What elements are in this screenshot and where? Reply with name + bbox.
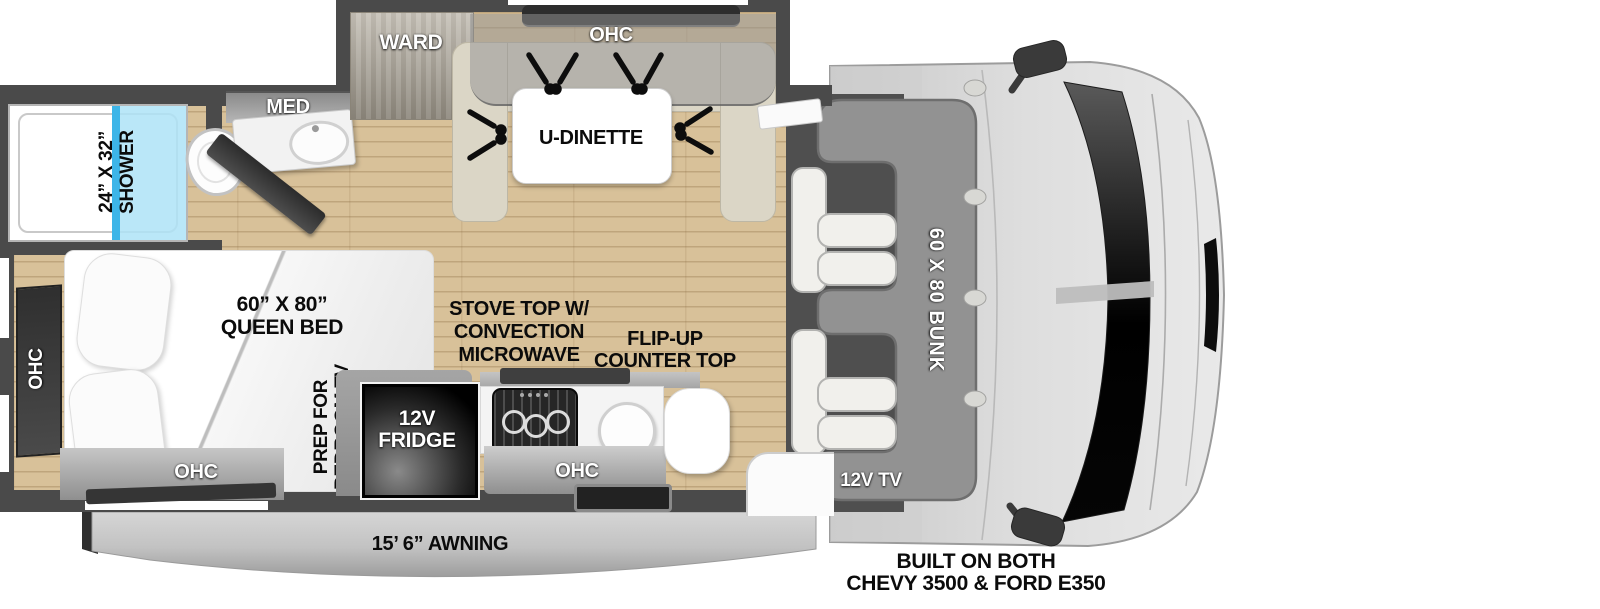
flip-up-counter	[664, 388, 730, 474]
kitchen-ohc-label: OHC	[537, 460, 617, 482]
flip-up-label: FLIP-UP COUNTER TOP	[570, 328, 760, 372]
burner	[502, 410, 526, 434]
shower-size-text: 24” X 32”	[96, 131, 117, 213]
bunk-text: 60 X 80 BUNK	[925, 228, 947, 372]
seatbelts	[440, 40, 780, 210]
cab-tv-label: 12V TV	[821, 471, 921, 492]
seatbelt-strap	[560, 55, 576, 82]
chassis-text-1: BUILT ON BOTH	[806, 551, 1146, 573]
front-grille-sliver	[1204, 238, 1219, 352]
stove-knobs	[520, 393, 524, 397]
bunk-label: 60 X 80 BUNK	[925, 215, 947, 385]
bed-type-text: QUEEN BED	[192, 316, 372, 339]
bath-sink	[287, 118, 351, 167]
fridge-label: 12V FRIDGE	[362, 408, 472, 452]
burner	[524, 414, 548, 438]
ohc-side-text: OHC	[27, 348, 48, 389]
ohc-side-label: OHC	[27, 334, 47, 404]
chassis-text-2: CHEVY 3500 & FORD E350	[806, 573, 1146, 595]
stove	[492, 388, 578, 454]
flip-text-2: COUNTER TOP	[570, 350, 760, 372]
chassis-note: BUILT ON BOTH CHEVY 3500 & FORD E350	[806, 551, 1146, 595]
seatbelt-strap	[529, 55, 546, 82]
seatbelt-strap	[616, 55, 633, 82]
flip-text-1: FLIP-UP	[570, 328, 760, 350]
seatbelt-strap	[688, 139, 711, 152]
stove-text-1: STOVE TOP W/	[404, 298, 634, 321]
burner	[546, 410, 570, 434]
seatbelt-strap	[646, 55, 661, 82]
pillow	[73, 250, 174, 374]
ohc-foot-label: OHC	[156, 461, 236, 483]
shower-name-text: SHOWER	[117, 130, 138, 214]
bed-size-text: 60” X 80”	[192, 293, 372, 316]
window-bedroom-left-2	[0, 395, 9, 472]
shower-label: 24” X 32” SHOWER	[96, 97, 138, 247]
bed-label: 60” X 80” QUEEN BED	[192, 293, 372, 339]
tv-prep-text-1: PREP FOR	[311, 380, 332, 474]
entry-step	[574, 484, 672, 512]
seatbelt-strap	[470, 112, 494, 126]
seatbelt-strap	[470, 143, 494, 158]
fridge-text-2: FRIDGE	[362, 430, 472, 452]
fridge-text-1: 12V	[362, 408, 472, 430]
seatbelt-strap	[687, 109, 710, 124]
rv-floorplan: 15’ 6” AWNING	[0, 0, 1600, 609]
awning-label: 15’ 6” AWNING	[320, 533, 560, 555]
window-bedroom-left-1	[0, 258, 9, 338]
